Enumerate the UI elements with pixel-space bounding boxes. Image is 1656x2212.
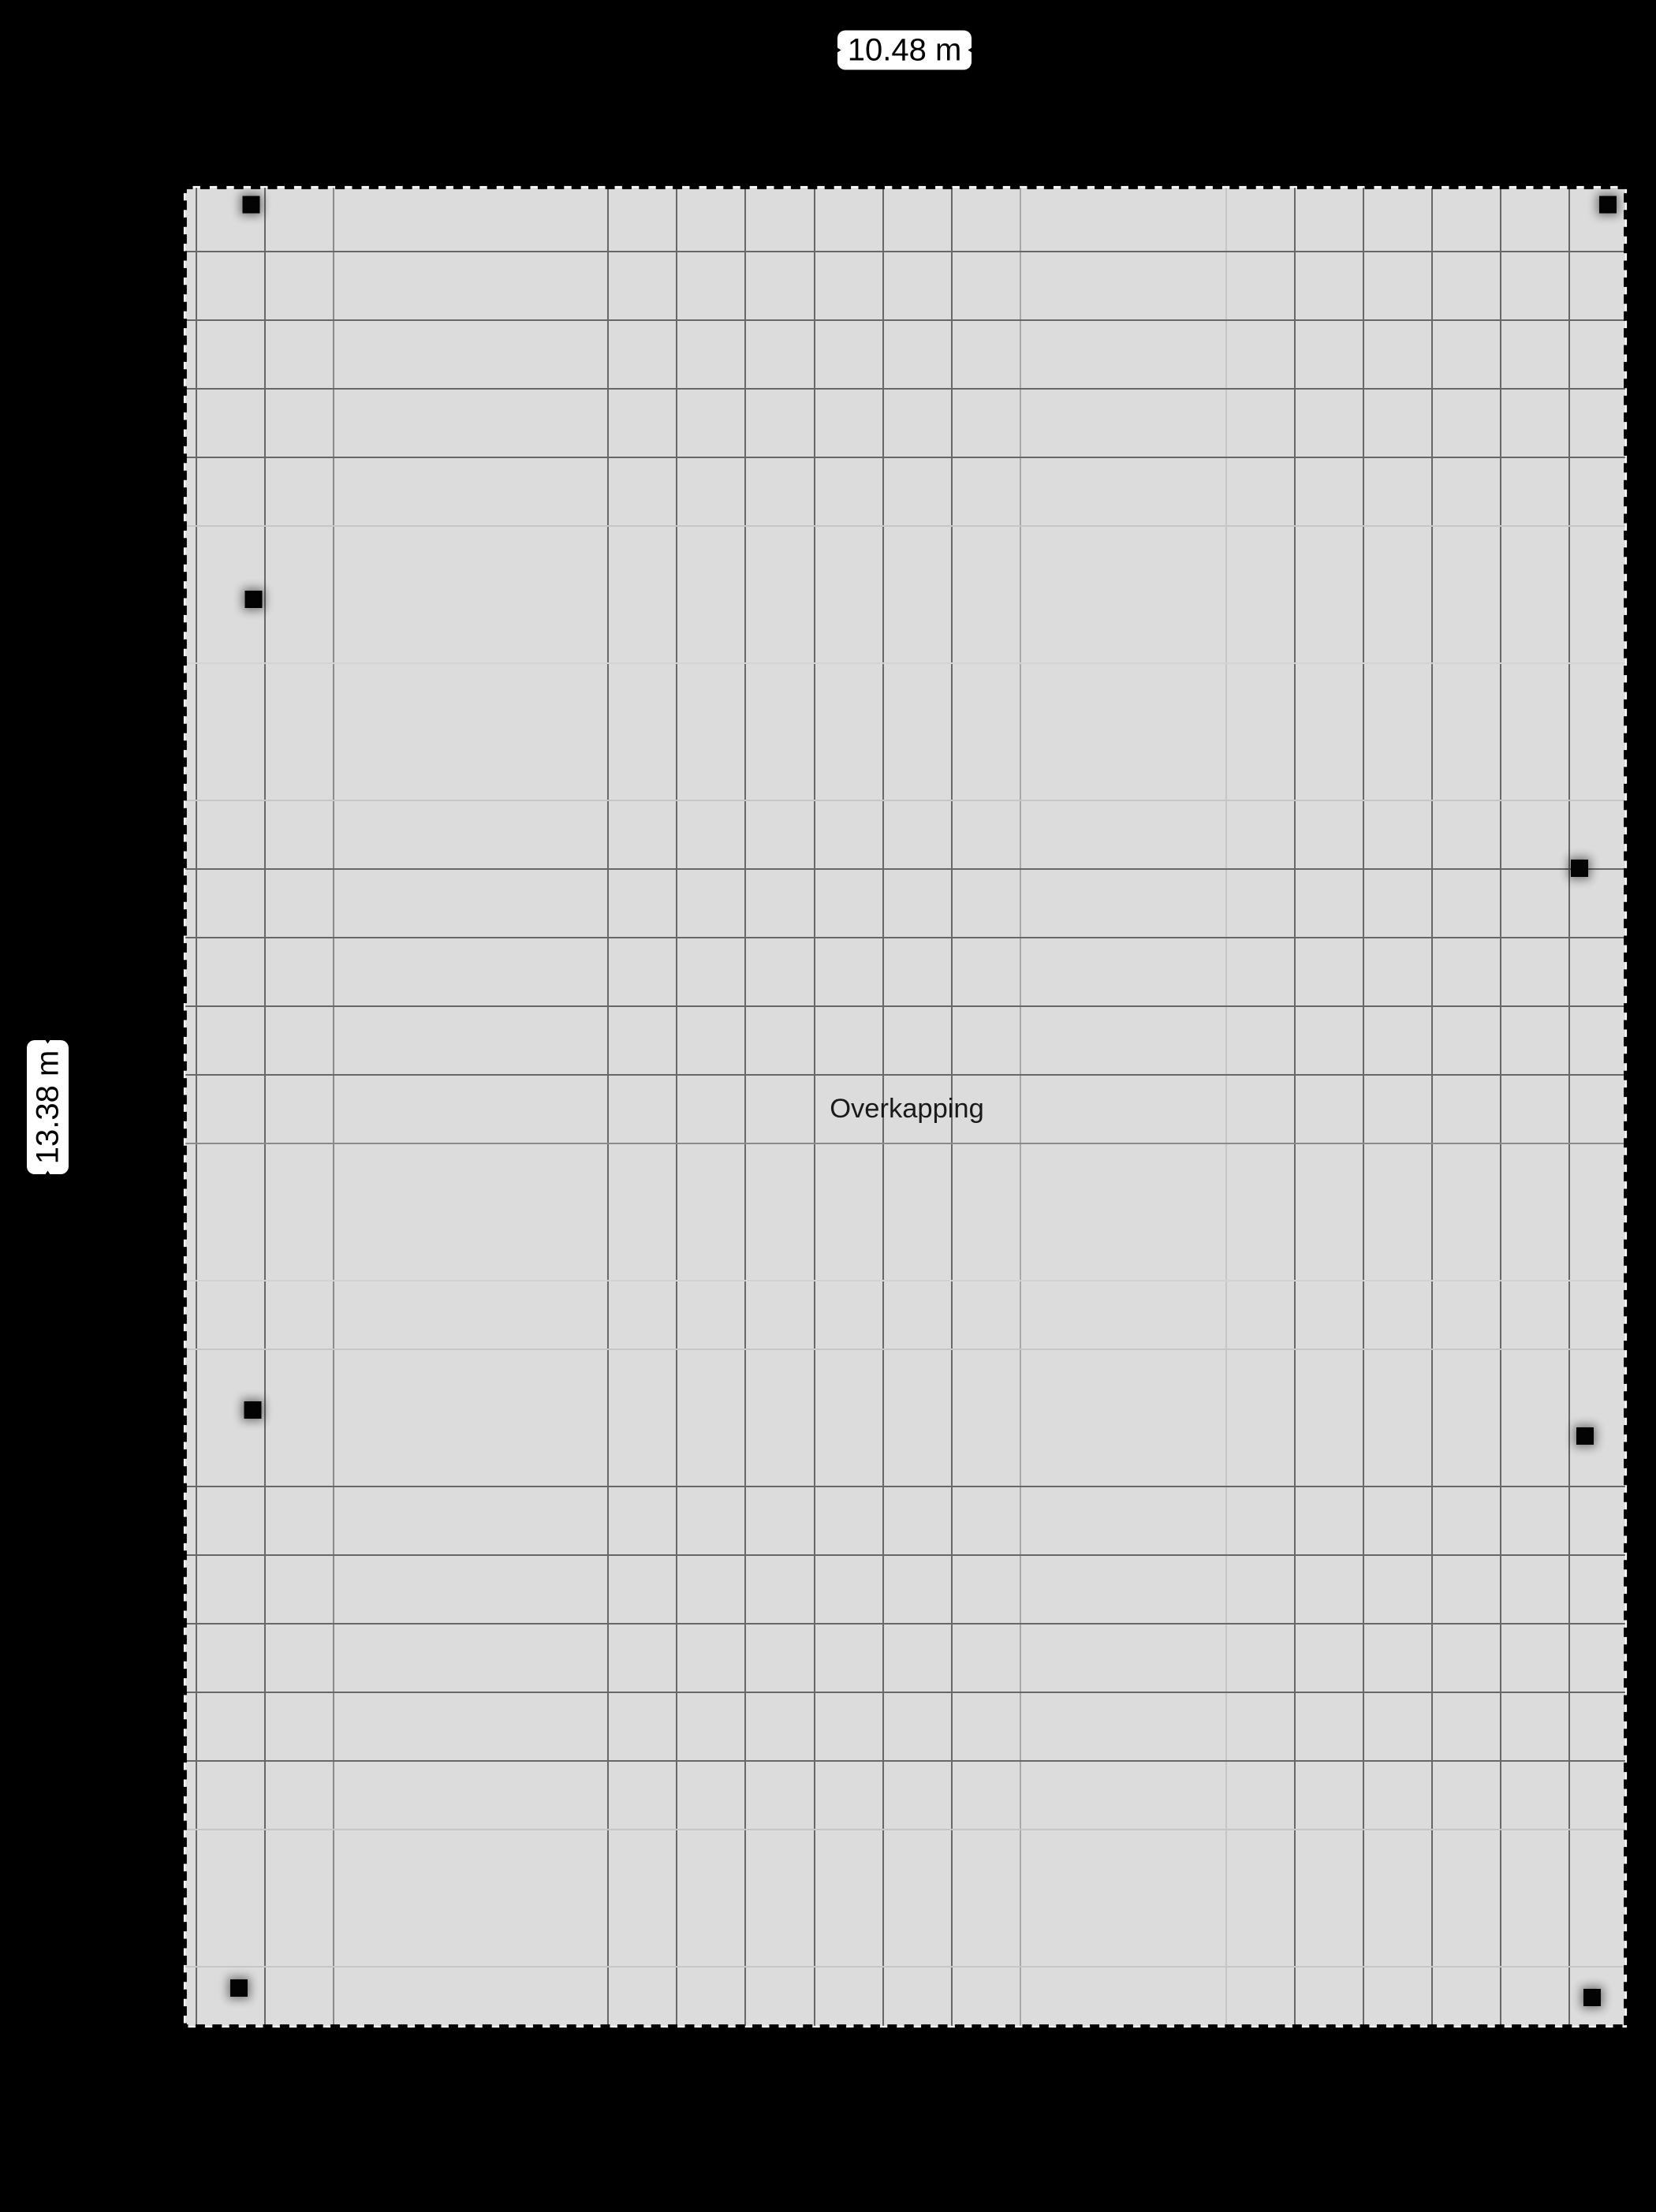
svg-text:Overkapping: Overkapping — [830, 1094, 984, 1124]
svg-text:10.48 m: 10.48 m — [848, 33, 962, 68]
svg-text:13.38 m: 13.38 m — [31, 1050, 65, 1165]
